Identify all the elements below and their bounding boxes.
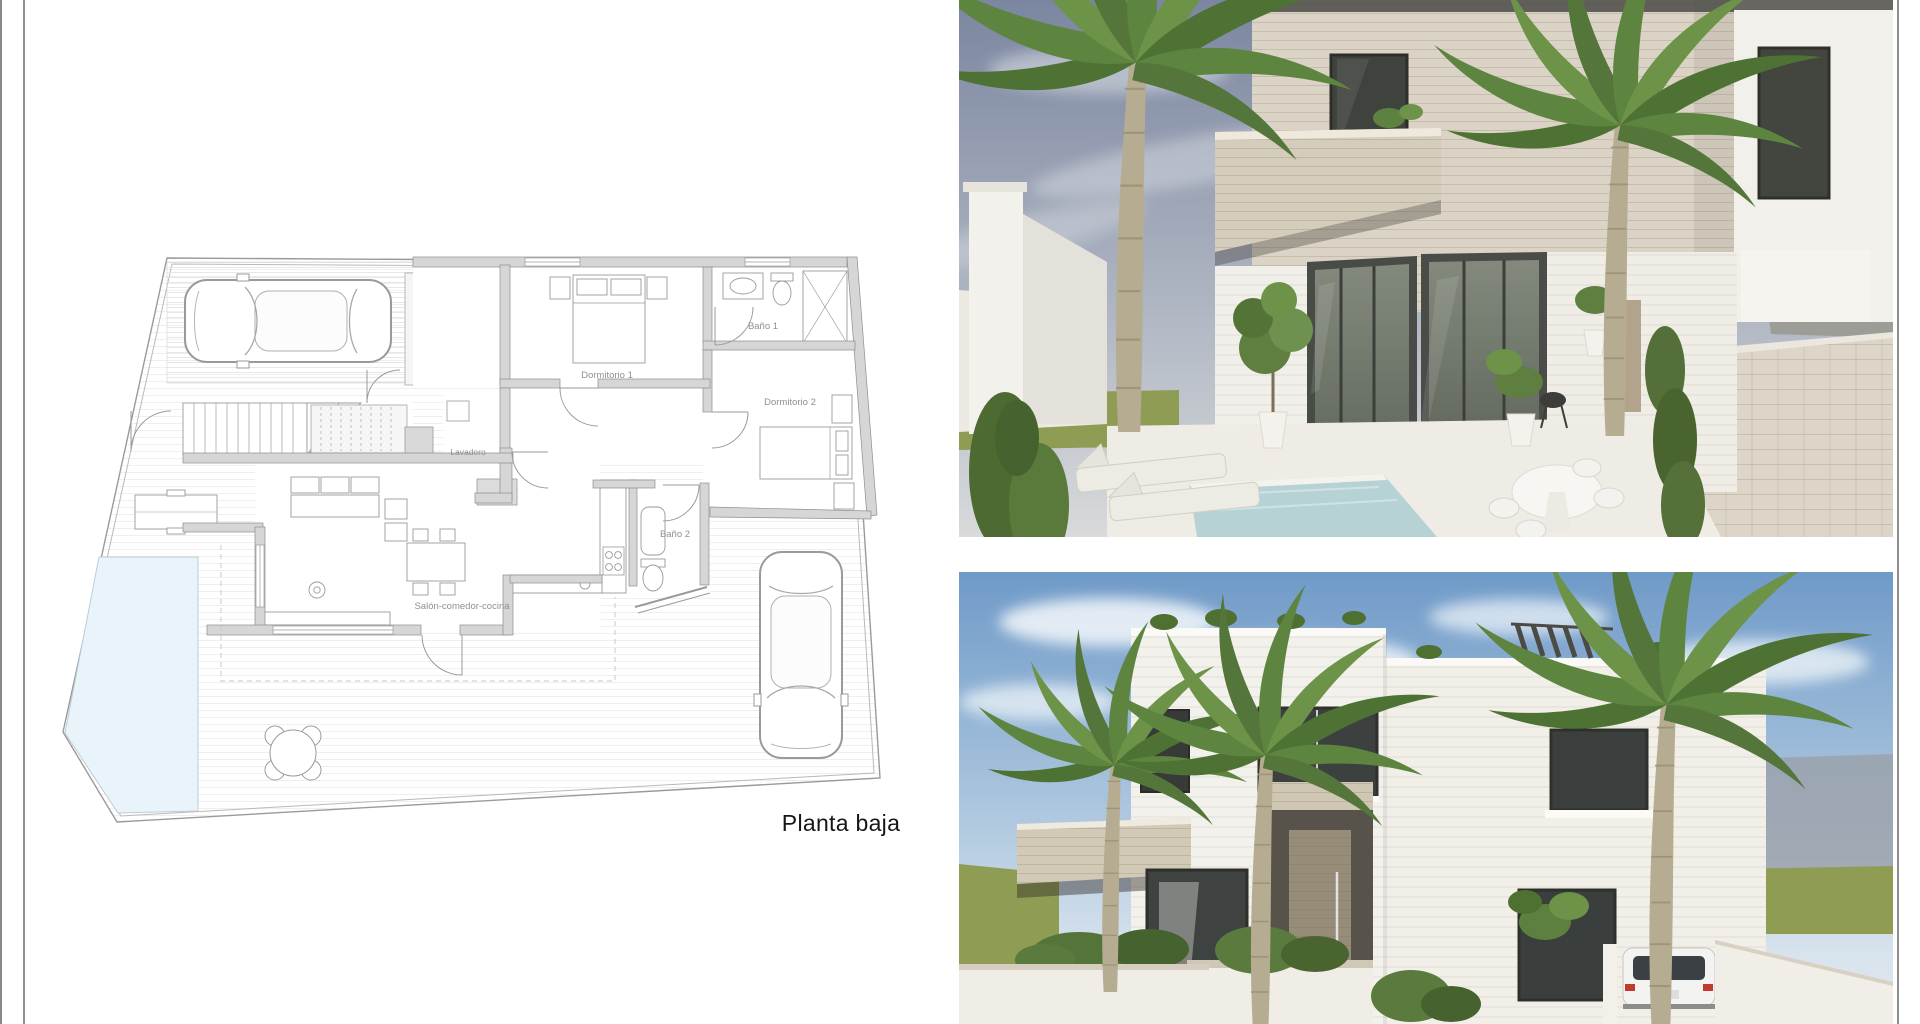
right-wing-window [1759, 48, 1829, 198]
render-top-exterior [959, 0, 1893, 537]
car-top-view-garage [185, 274, 391, 368]
sheet-border-left-outer [0, 0, 2, 1024]
page: Dormitorio 1 Baño 1 Dormitorio 2 Lavader… [0, 0, 1920, 1024]
room-label-dormitorio-2: Dormitorio 2 [764, 397, 816, 408]
room-label-dormitorio-1: Dormitorio 1 [581, 370, 633, 381]
room-label-lavadero: Lavadero [450, 447, 486, 457]
floor-plan: Dormitorio 1 Baño 1 Dormitorio 2 Lavader… [55, 245, 895, 845]
room-label-bano-1: Baño 1 [748, 321, 778, 332]
bathroom-2-fixtures [641, 507, 665, 591]
sheet-border-left-inner [23, 0, 25, 1024]
round-table-icon [265, 726, 321, 780]
wall-left [959, 964, 1209, 1024]
render-bottom-exterior [959, 572, 1893, 1024]
side-table-icon [309, 582, 325, 598]
window-upper-right [1551, 730, 1647, 810]
sheet-border-right [1897, 0, 1899, 1024]
sideboard-icon [260, 612, 390, 625]
car-top-view-patio [754, 552, 848, 758]
room-label-bano-2: Baño 2 [660, 529, 690, 540]
room-label-salon: Salón-comedor-cocina [414, 601, 510, 612]
plan-caption: Planta baja [766, 810, 916, 837]
swimming-pool [65, 557, 198, 813]
